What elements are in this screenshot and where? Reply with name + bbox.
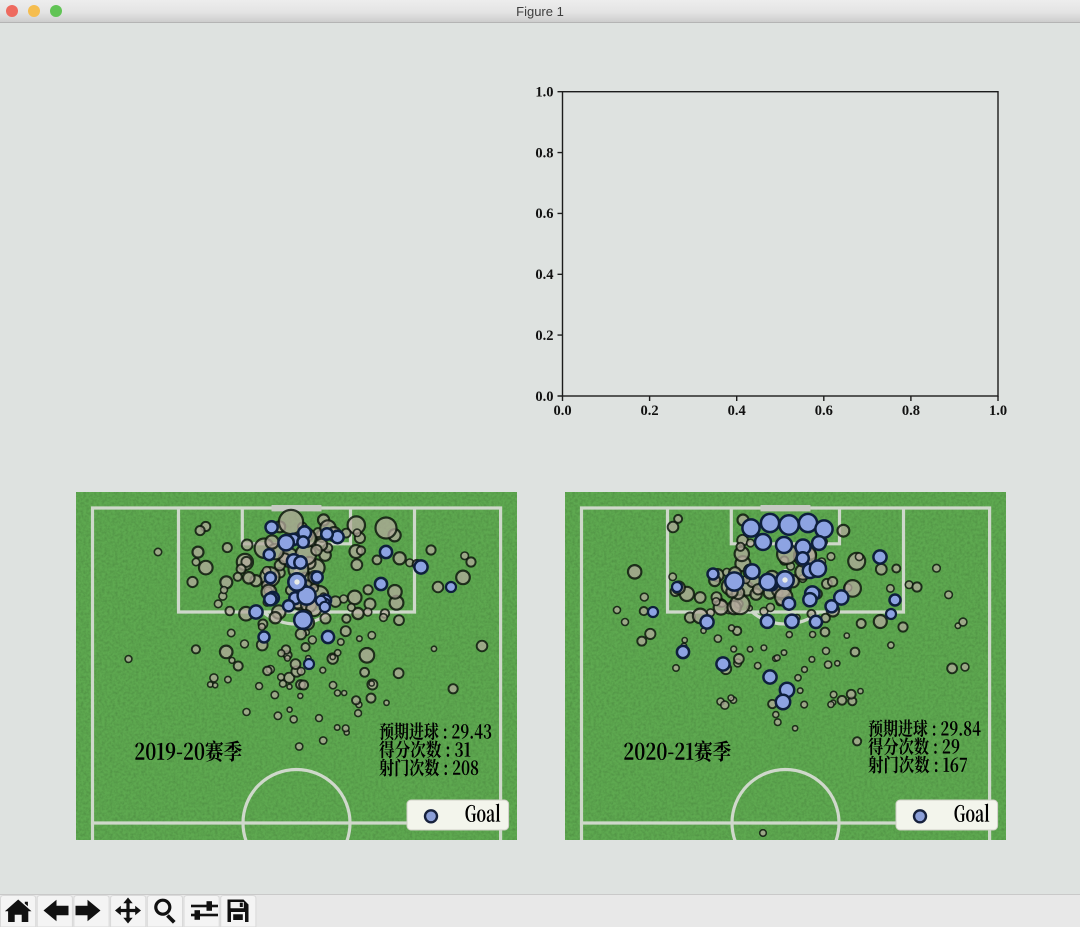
svg-text:0.4: 0.4 xyxy=(728,403,746,419)
svg-text:0.6: 0.6 xyxy=(815,403,833,419)
svg-text:0.8: 0.8 xyxy=(535,145,553,161)
svg-text:0.0: 0.0 xyxy=(535,389,553,405)
svg-text:0.0: 0.0 xyxy=(553,403,571,419)
svg-text:0.6: 0.6 xyxy=(535,206,553,222)
svg-text:1.0: 1.0 xyxy=(989,403,1007,419)
svg-text:0.8: 0.8 xyxy=(902,403,920,419)
svg-text:0.2: 0.2 xyxy=(641,403,659,419)
svg-text:0.2: 0.2 xyxy=(535,328,553,344)
svg-text:0.4: 0.4 xyxy=(535,267,553,283)
svg-text:1.0: 1.0 xyxy=(535,85,553,101)
